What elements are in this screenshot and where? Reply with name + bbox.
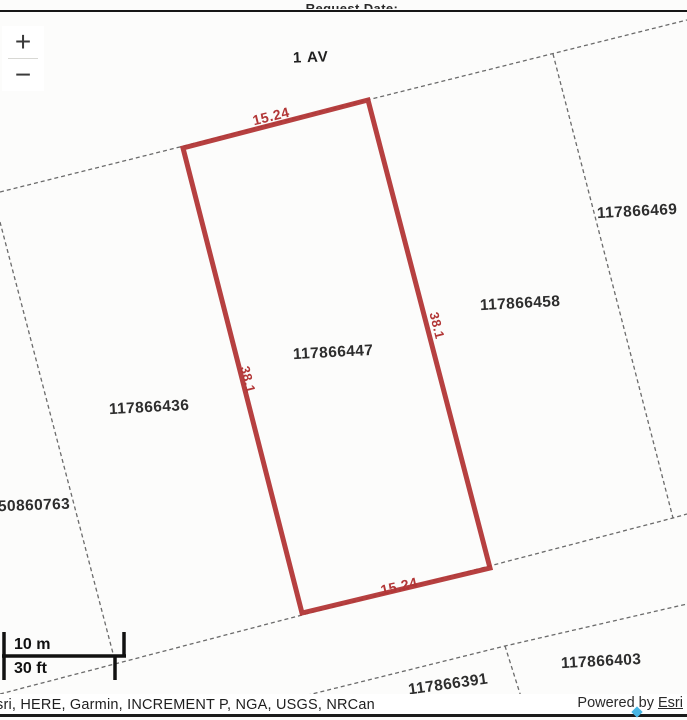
zoom-in-button[interactable]: +	[3, 26, 43, 58]
parcel-label: 50860763	[0, 496, 70, 517]
powered-by-text: Powered by Esri	[577, 695, 683, 711]
attribution-sources-text: sri, HERE, Garmin, INCREMENT P, NGA, USG…	[0, 697, 375, 713]
scale-bar-imperial-label: 30 ft	[14, 660, 47, 678]
zoom-control: + −	[2, 26, 44, 91]
street-label: 1 AV	[293, 48, 329, 66]
esri-link[interactable]: Esri	[658, 695, 683, 711]
scale-bar-metric-label: 10 m	[14, 636, 50, 654]
zoom-out-button[interactable]: −	[3, 59, 43, 91]
south-parcel-divider-line	[505, 646, 522, 700]
attribution-bar: sri, HERE, Garmin, INCREMENT P, NGA, USG…	[0, 694, 687, 717]
powered-by-prefix: Powered by	[577, 695, 658, 711]
west-parcel-divider-line	[0, 222, 115, 661]
east-parcel-divider-line	[553, 54, 673, 518]
map-viewport[interactable]: Request Date: ... 1 AV 117866469 1178664…	[0, 0, 687, 720]
